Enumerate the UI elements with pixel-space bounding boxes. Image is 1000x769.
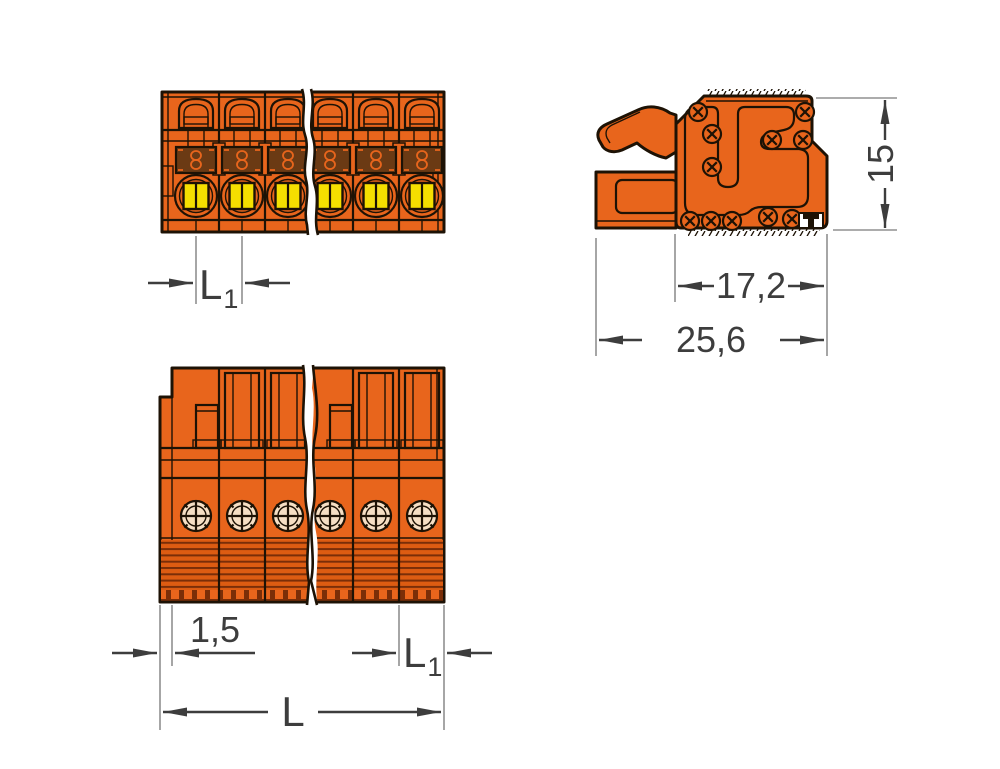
- rivet: [794, 131, 812, 149]
- front-pole-2: [221, 99, 263, 232]
- dim-label-total-depth: 25,6: [676, 319, 746, 360]
- wire-funnel-5: [361, 501, 391, 531]
- wire-funnel-4: [315, 501, 345, 531]
- dim-label-pitch-top: L1: [199, 261, 238, 314]
- bottom-view: [160, 364, 444, 606]
- dim-label-height: 15: [860, 144, 901, 184]
- dim-total-length: L: [163, 688, 441, 735]
- rivet: [702, 212, 720, 230]
- dim-pitch-bottom-base: L: [403, 629, 426, 676]
- dim-label-pitch-bottom: L1: [403, 629, 442, 682]
- dim-pitch-top: L1: [148, 236, 290, 314]
- drawing-canvas: L1: [0, 0, 1000, 769]
- rivet: [681, 212, 699, 230]
- release-lever: [598, 107, 676, 158]
- rivet: [703, 125, 721, 143]
- wire-funnel-1: [181, 501, 211, 531]
- dim-pitch-top-base: L: [199, 261, 222, 308]
- rivet: [759, 208, 777, 226]
- side-view: [596, 89, 827, 236]
- dim-label-end-wall: 1,5: [190, 609, 240, 650]
- dim-label-total-length: L: [281, 688, 304, 735]
- dim-total-depth: 25,6: [596, 238, 824, 360]
- rivet: [723, 212, 741, 230]
- rivet: [703, 158, 721, 176]
- front-pole-6: [401, 99, 443, 232]
- dim-pitch-top-sub: 1: [223, 284, 238, 314]
- rivet: [689, 103, 707, 121]
- wire-funnel-3: [273, 501, 303, 531]
- front-pole-5: [355, 99, 397, 232]
- plug-socket-block: [596, 172, 678, 228]
- dim-label-housing-depth: 17,2: [716, 265, 786, 306]
- wire-funnel-6: [407, 501, 437, 531]
- wire-funnel-2: [227, 501, 257, 531]
- dim-height: 15: [816, 98, 901, 230]
- technical-drawing: L1: [0, 0, 1000, 769]
- rivet: [763, 131, 781, 149]
- rivet: [796, 103, 814, 121]
- ribbed-grip-zone: [161, 540, 443, 590]
- castellated-strip: [161, 590, 443, 601]
- front-pole-1: [175, 99, 217, 232]
- latch-notch: [799, 213, 823, 228]
- dim-pitch-bottom-sub: 1: [427, 652, 442, 682]
- front-view: [162, 88, 444, 236]
